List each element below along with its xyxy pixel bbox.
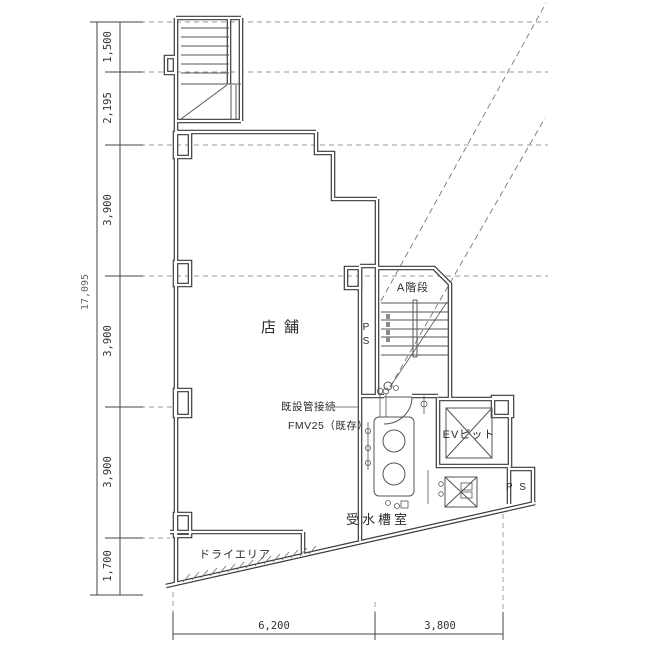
annotation-pipe-connection: 既設管接続 xyxy=(281,400,336,413)
dim-left-3: 3,900 xyxy=(102,325,114,357)
walls-outline xyxy=(166,18,535,586)
room-label-stair-a: A階段 xyxy=(397,280,429,294)
extension-lines xyxy=(140,3,548,612)
room-label-store: 店舗 xyxy=(261,319,307,336)
detail-linework xyxy=(181,28,492,582)
walls-core xyxy=(166,18,535,586)
diagonal-guide-1 xyxy=(381,3,546,301)
floorplan-svg: 店舗 A階段 PS EVピット P S 受水槽室 ドライエリア 既設管接続 FM… xyxy=(0,0,660,660)
exterior-stair xyxy=(181,28,241,119)
room-label-water-tank: 受水槽室 xyxy=(346,512,410,527)
stair-a-detail xyxy=(381,300,448,391)
dim-bottom-1: 3,800 xyxy=(424,620,456,632)
dim-left-2: 3,900 xyxy=(102,194,114,226)
dim-bottom-0: 6,200 xyxy=(258,620,290,632)
door-swing xyxy=(384,397,412,424)
drawing-sheet: 店舗 A階段 PS EVピット P S 受水槽室 ドライエリア 既設管接続 FM… xyxy=(0,0,660,660)
sump-pit xyxy=(428,470,477,507)
room-label-dry-area: ドライエリア xyxy=(199,549,271,561)
room-label-ps-room: P S xyxy=(506,482,528,493)
dim-left-0: 1,500 xyxy=(102,31,114,63)
annotation-pipe-spec: FMV25（既存） xyxy=(288,419,368,432)
dim-left-total: 17,095 xyxy=(80,274,91,310)
room-label-ps-shaft: PS xyxy=(361,322,372,350)
dim-left-1: 2,195 xyxy=(102,92,114,124)
room-label-ev-pit: EVピット xyxy=(443,428,496,441)
water-tank xyxy=(365,388,427,508)
dim-ticks-left xyxy=(90,22,143,595)
dim-left-4: 3,900 xyxy=(102,456,114,488)
dim-left-5: 1,700 xyxy=(102,550,114,582)
